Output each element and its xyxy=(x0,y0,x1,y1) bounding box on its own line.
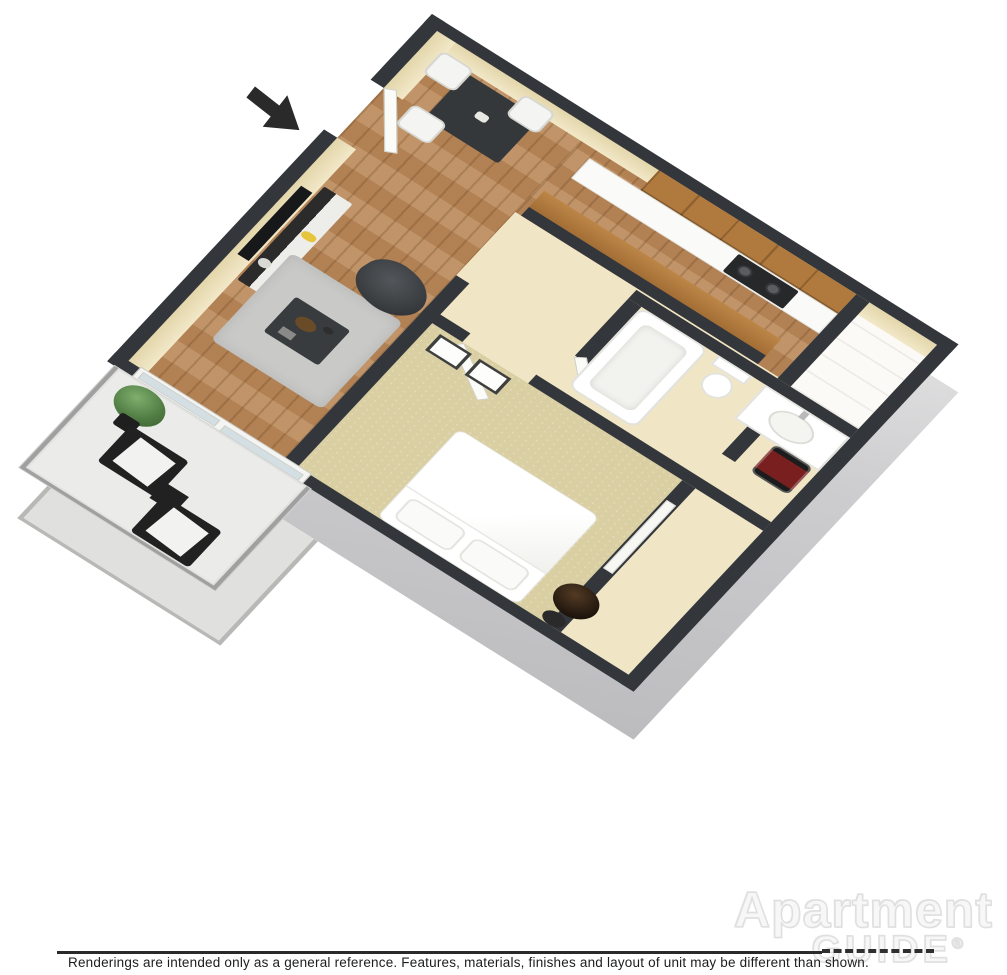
floorplan-stage: Apartment GUIDE® Renderings are intended… xyxy=(0,0,1007,975)
console-lamp xyxy=(255,256,273,271)
entry-door xyxy=(384,88,398,154)
watermark: Apartment GUIDE® xyxy=(734,888,993,967)
stove-burner xyxy=(734,263,755,280)
balcony-chair xyxy=(97,425,189,498)
chair-cushion xyxy=(145,507,208,556)
balcony-chair xyxy=(130,495,222,568)
table-dishes xyxy=(473,110,490,123)
floor-plan xyxy=(0,14,958,816)
watermark-brand-bottom: GUIDE® xyxy=(812,933,967,967)
decor-item xyxy=(321,325,335,336)
chair-cushion xyxy=(112,437,175,486)
bananas xyxy=(299,230,318,244)
entry-arrow-shape xyxy=(235,72,315,150)
decor-tray xyxy=(277,326,296,340)
entry-arrow-icon xyxy=(235,72,315,150)
watermark-brand-top: Apartment xyxy=(734,888,993,933)
footer-rule xyxy=(57,951,822,954)
registered-mark: ® xyxy=(952,935,967,952)
decor-bowl xyxy=(292,314,320,336)
stove-burner xyxy=(762,281,783,298)
